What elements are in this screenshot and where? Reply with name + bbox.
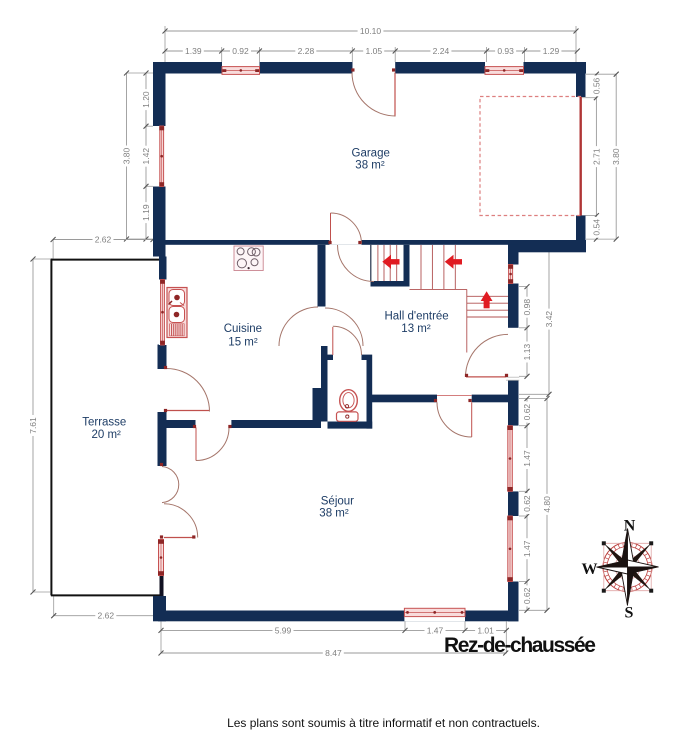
svg-text:1.13: 1.13 [522,344,532,361]
svg-text:Séjour: Séjour [321,496,354,508]
svg-text:Terrasse: Terrasse [82,417,126,429]
svg-text:3.80: 3.80 [122,147,132,164]
svg-text:N: N [624,518,636,535]
svg-text:1.39: 1.39 [185,46,202,56]
svg-text:8.47: 8.47 [325,648,342,658]
svg-text:15 m²: 15 m² [228,337,258,349]
svg-text:7.61: 7.61 [28,417,38,434]
svg-text:2.71: 2.71 [591,148,601,165]
svg-text:0.62: 0.62 [522,404,532,421]
svg-text:1.05: 1.05 [366,46,383,56]
svg-text:0.98: 0.98 [522,299,532,316]
svg-text:4.80: 4.80 [542,496,552,513]
svg-text:2.62: 2.62 [95,235,112,245]
svg-text:W: W [582,561,598,578]
svg-text:Hall d'entrée: Hall d'entrée [384,311,448,323]
svg-text:1.29: 1.29 [543,46,560,56]
svg-text:38 m²: 38 m² [355,160,385,172]
svg-text:13 m²: 13 m² [401,323,431,335]
svg-text:5.99: 5.99 [275,625,292,635]
svg-text:0.56: 0.56 [591,77,601,94]
svg-text:10.10: 10.10 [360,26,382,36]
svg-text:Les plans sont soumis à titre: Les plans sont soumis à titre informatif… [227,716,540,730]
svg-text:2.24: 2.24 [433,46,450,56]
svg-text:S: S [625,605,634,622]
svg-text:1.47: 1.47 [427,625,444,635]
svg-text:1.42: 1.42 [141,148,151,165]
svg-text:3.80: 3.80 [611,148,621,165]
svg-text:0.54: 0.54 [591,219,601,236]
svg-text:1.47: 1.47 [522,450,532,467]
svg-text:0.92: 0.92 [232,46,249,56]
svg-text:1.19: 1.19 [141,204,151,221]
svg-text:2.28: 2.28 [298,46,315,56]
svg-text:3.42: 3.42 [544,311,554,328]
svg-text:2.62: 2.62 [98,611,115,621]
svg-text:1.20: 1.20 [141,91,151,108]
svg-text:0.93: 0.93 [497,46,514,56]
svg-text:0.62: 0.62 [522,587,532,604]
svg-text:0.62: 0.62 [522,495,532,512]
svg-text:Garage: Garage [352,147,390,159]
svg-text:20 m²: 20 m² [91,429,121,441]
svg-text:Cuisine: Cuisine [224,323,262,335]
svg-text:38 m²: 38 m² [319,508,349,520]
svg-text:1.47: 1.47 [522,540,532,557]
svg-text:Rez-de-chaussée: Rez-de-chaussée [444,634,595,657]
